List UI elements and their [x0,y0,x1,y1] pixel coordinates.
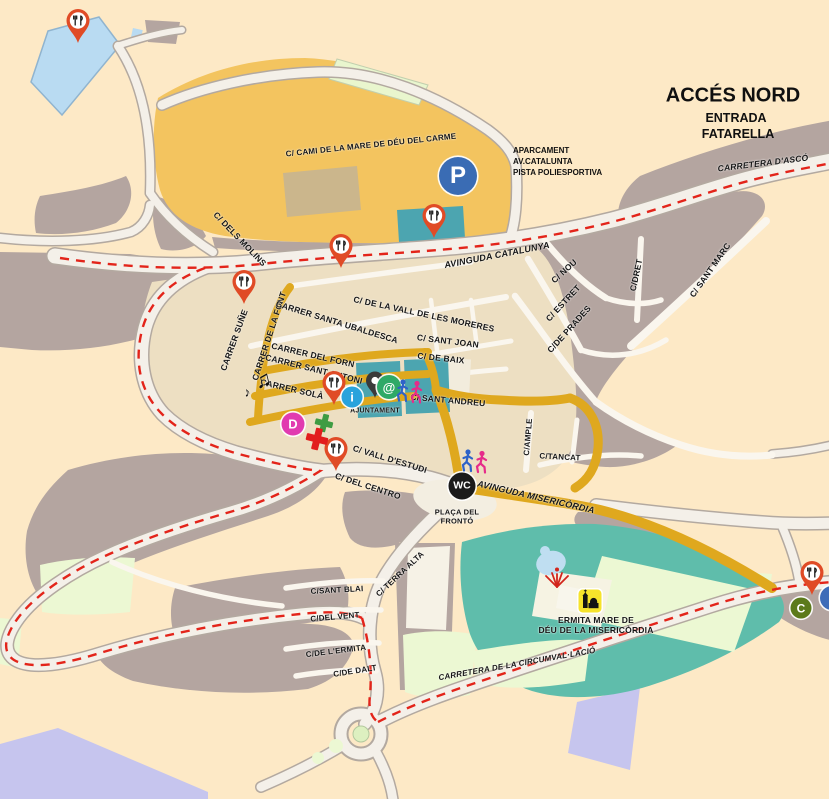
wc-badge[interactable]: WC [449,473,476,500]
restaurant-pin-icon[interactable] [421,203,447,239]
d-badge[interactable]: D [282,413,305,436]
music-note-small-icon[interactable]: ♪ [242,384,252,400]
restaurant-pin-icon[interactable] [231,269,257,305]
runners-icon [459,448,493,476]
music-note-icon[interactable]: ♫ [252,365,274,394]
markers-layer: P WC i @ D C ♫ ♪ [0,0,829,799]
info-badge[interactable]: i [342,387,363,408]
church-badge-icon[interactable] [577,588,603,614]
parking-badge[interactable]: P [439,157,477,195]
restaurant-pin-icon[interactable] [65,8,91,44]
restaurant-pin-icon[interactable] [328,233,354,269]
fatarella-town-map: ACCÉS NORD ENTRADA FATARELLA APARCAMENT … [0,0,829,799]
runners-icon [394,378,428,406]
c-badge[interactable]: C [791,598,812,619]
sun-rays-icon [542,567,572,589]
